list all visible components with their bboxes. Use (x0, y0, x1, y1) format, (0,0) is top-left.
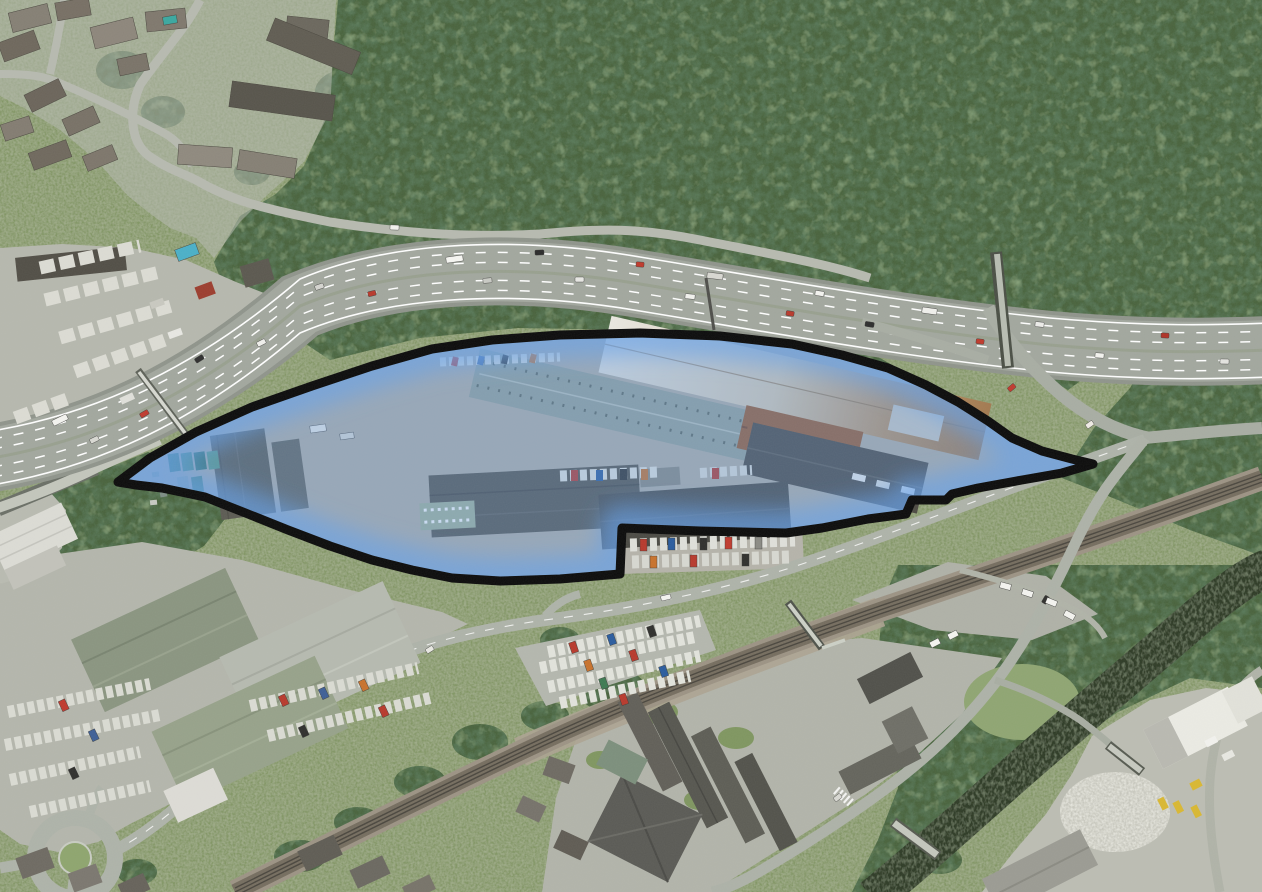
photo-grain (0, 0, 1262, 892)
aerial-photo: Aerial photograph of an industrial estat… (0, 0, 1262, 892)
